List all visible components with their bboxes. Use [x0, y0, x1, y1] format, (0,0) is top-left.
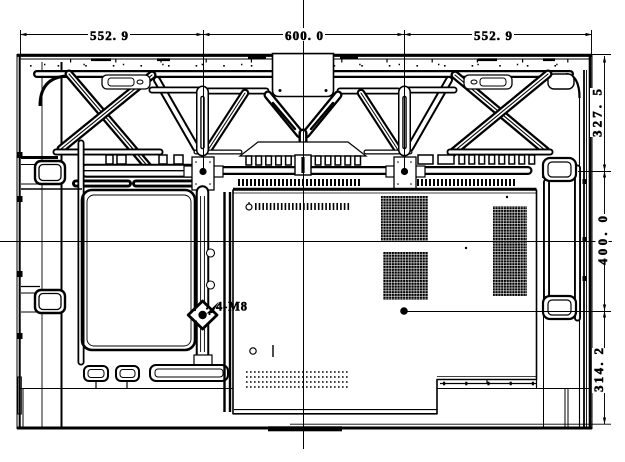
svg-text:552. 9: 552. 9: [90, 28, 129, 43]
svg-text:552. 9: 552. 9: [474, 28, 513, 43]
svg-text:600. 0: 600. 0: [285, 28, 323, 43]
svg-text:4-M8: 4-M8: [216, 300, 247, 314]
